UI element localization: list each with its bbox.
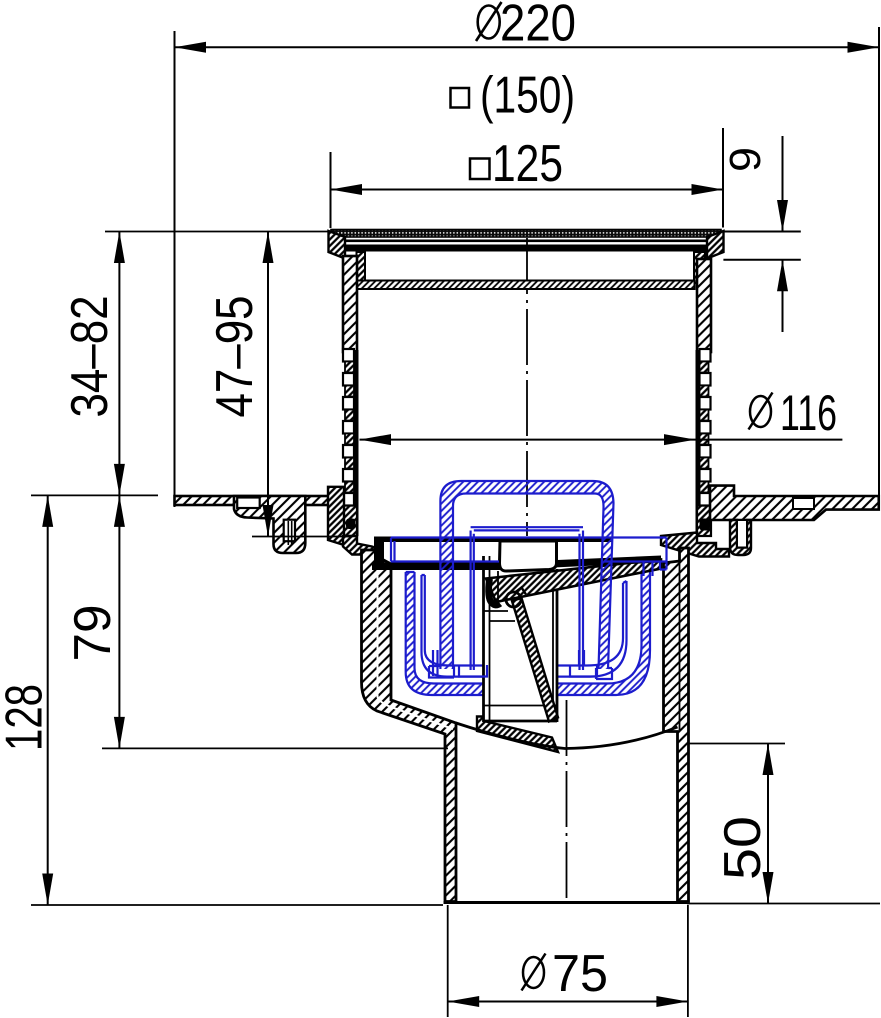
svg-text:50: 50 xyxy=(714,816,772,880)
svg-text:34–82: 34–82 xyxy=(61,296,119,418)
svg-text:125: 125 xyxy=(492,135,563,193)
svg-text:47–95: 47–95 xyxy=(206,296,264,418)
svg-text:220: 220 xyxy=(500,0,576,53)
svg-text:128: 128 xyxy=(0,684,54,751)
svg-text:(150): (150) xyxy=(480,67,575,125)
svg-text:116: 116 xyxy=(780,385,837,441)
svg-text:75: 75 xyxy=(552,945,608,1003)
svg-text:9: 9 xyxy=(721,147,770,172)
svg-text:79: 79 xyxy=(64,605,122,662)
